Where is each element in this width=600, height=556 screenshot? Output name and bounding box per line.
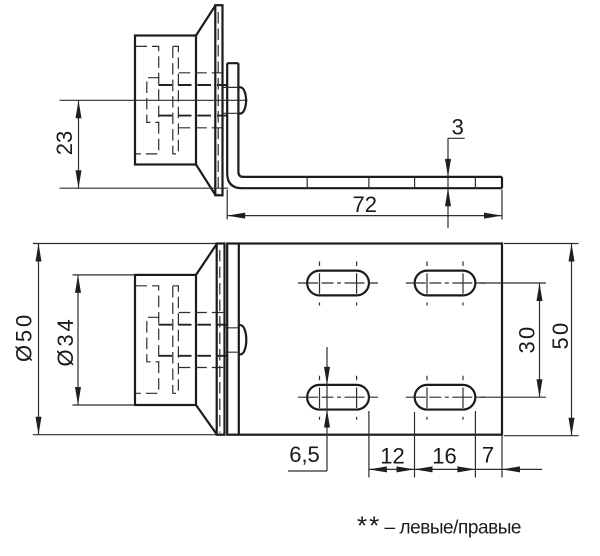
- svg-text:30: 30: [515, 325, 540, 354]
- svg-text:**: **: [357, 511, 381, 541]
- svg-text:7: 7: [482, 443, 494, 468]
- svg-text:6,5: 6,5: [289, 442, 320, 467]
- svg-text:23: 23: [52, 131, 77, 155]
- svg-text:12: 12: [380, 444, 404, 469]
- svg-text:72: 72: [352, 192, 376, 217]
- svg-text:Ø50: Ø50: [12, 312, 37, 362]
- svg-text:3: 3: [452, 114, 464, 139]
- svg-text:Ø34: Ø34: [53, 317, 78, 367]
- svg-text:– левые/правые: – левые/правые: [385, 518, 522, 539]
- svg-text:50: 50: [548, 321, 573, 350]
- svg-text:16: 16: [432, 444, 456, 469]
